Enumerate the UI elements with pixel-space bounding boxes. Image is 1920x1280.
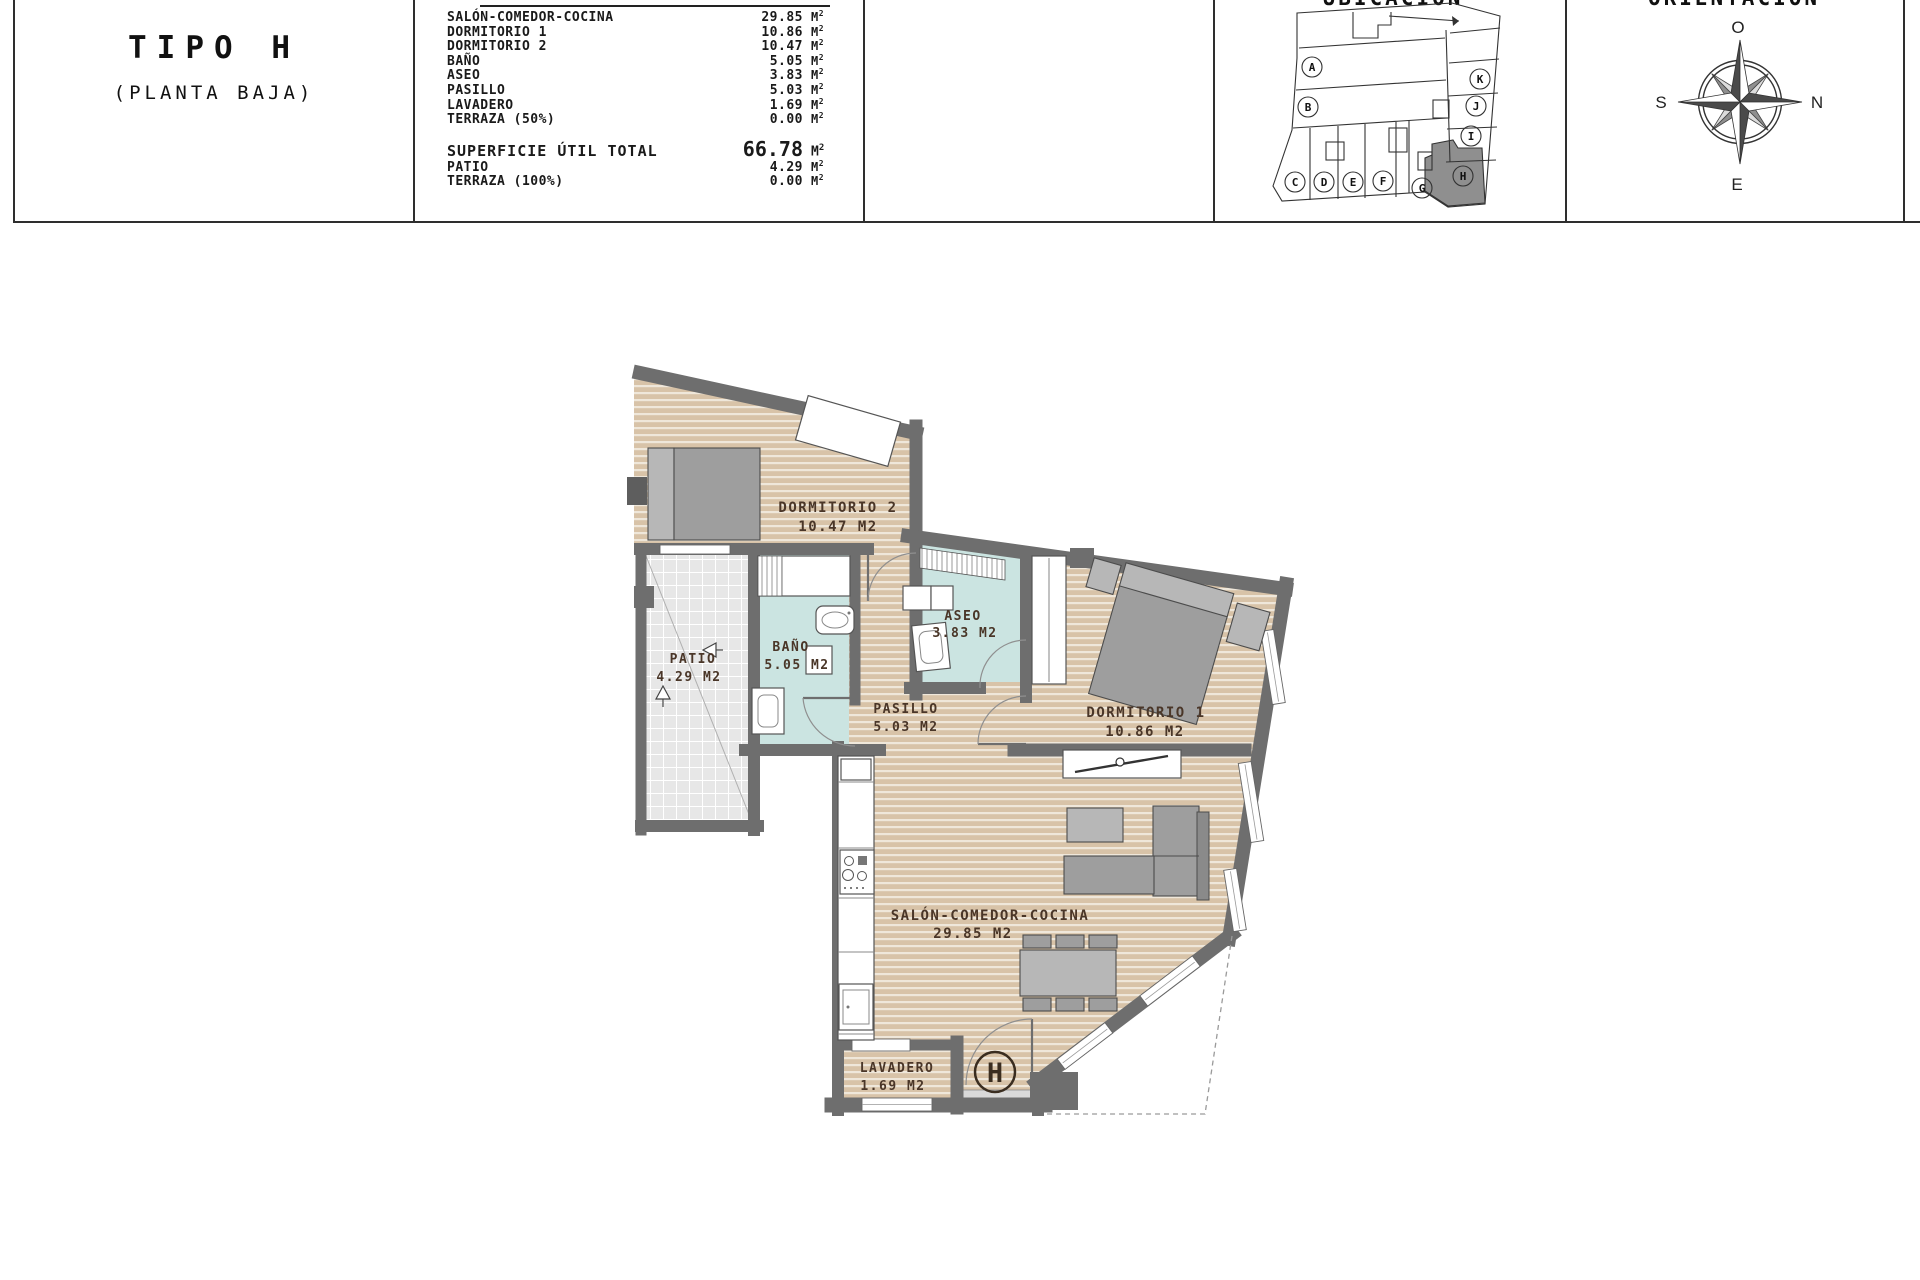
kitchen-counter: [838, 756, 874, 1040]
compass-north-label: N: [1811, 93, 1823, 112]
table-row: PATIO4.29M2: [447, 159, 845, 174]
divider-1: [413, 0, 415, 222]
row-unit: M2: [803, 67, 845, 82]
row-unit: M2: [803, 82, 845, 97]
wall-block-left: [627, 477, 647, 505]
label-lavadero-name: LAVADERO: [860, 1061, 935, 1076]
stair-arrow: [1389, 16, 1459, 21]
label-dormitorio1-name: DORMITORIO 1: [1086, 705, 1205, 721]
row-value: 0.00: [741, 112, 803, 127]
label-salon-name: SALÓN-COMEDOR-COCINA: [891, 906, 1090, 924]
floor-plan: DORMITORIO 2 10.47 M2 BAÑO 5.05 M2 ASEO …: [610, 350, 1310, 1140]
bathtub: [816, 606, 854, 634]
dining-set: [1020, 935, 1117, 1011]
label-patio-name: PATIO: [670, 652, 717, 667]
coffee-table: [1067, 808, 1123, 842]
ubicacion-panel: UBICACIÓN A B C D E F: [1213, 0, 1565, 222]
row-value: 0.00: [741, 174, 803, 189]
unit-letter-i: I: [1468, 130, 1475, 143]
table-total-row: SUPERFICIE ÚTIL TOTAL66.78M2: [447, 137, 845, 159]
row-value: 4.29: [741, 160, 803, 175]
label-aseo-name: ASEO: [944, 609, 981, 624]
label-pasillo-name: PASILLO: [873, 702, 938, 717]
row-value: 5.03: [741, 83, 803, 98]
unit-letter-g: G: [1419, 182, 1426, 195]
compass-east-label: E: [1731, 175, 1742, 194]
unit-letter-h: H: [1460, 170, 1467, 183]
label-bano-area: 5.05 M2: [764, 658, 829, 673]
floorplan-sheet: TIPO H (PLANTA BAJA) SALÓN-COMEDOR-COCIN…: [0, 0, 1920, 1280]
label-lavadero-area: 1.69 M2: [860, 1079, 925, 1094]
title-header-band: TIPO H (PLANTA BAJA) SALÓN-COMEDOR-COCIN…: [0, 0, 1920, 222]
area-table: SALÓN-COMEDOR-COCINA29.85M2 DORMITORIO 1…: [447, 9, 845, 188]
type-title-block: TIPO H (PLANTA BAJA): [15, 0, 413, 222]
unit-h-highlight: [1425, 140, 1485, 206]
entrance-marker-letter: H: [987, 1058, 1003, 1089]
label-aseo-area: 3.83 M2: [932, 626, 997, 641]
unit-letter-d: D: [1321, 176, 1328, 189]
row-value: 29.85: [741, 10, 803, 25]
compass-south-label: S: [1655, 93, 1666, 112]
label-salon-area: 29.85 M2: [933, 926, 1012, 942]
row-value: 10.47: [741, 39, 803, 54]
row-unit: M2: [803, 159, 845, 174]
unit-letters: A B C D E F G H I J K: [1285, 57, 1490, 198]
row-unit: M2: [803, 38, 845, 53]
page-subtitle: (PLANTA BAJA): [114, 82, 315, 104]
kitchen-sink: [839, 984, 873, 1030]
label-dormitorio1-area: 10.86 M2: [1105, 724, 1184, 740]
row-label: PASILLO: [447, 83, 741, 98]
stove: [840, 850, 874, 894]
unit-letter-k: K: [1477, 73, 1484, 86]
row-unit: M2: [803, 173, 845, 188]
page-title: TIPO H: [128, 30, 300, 66]
table-row: BAÑO5.05M2: [447, 53, 845, 68]
divider-2: [863, 0, 865, 222]
compass-west-label: O: [1731, 18, 1744, 37]
unit-letter-b: B: [1305, 101, 1312, 114]
unit-letter-e: E: [1350, 176, 1357, 189]
total-value: 66.78: [729, 137, 803, 161]
window-patio: [660, 545, 730, 554]
table-row: TERRAZA (100%)0.00M2: [447, 173, 845, 188]
entrance-wall-block: [1030, 1072, 1078, 1110]
total-label: SUPERFICIE ÚTIL TOTAL: [447, 142, 729, 160]
table-row: DORMITORIO 210.47M2: [447, 38, 845, 53]
row-value: 10.86: [741, 25, 803, 40]
label-dormitorio2-name: DORMITORIO 2: [778, 500, 897, 516]
table-row: ASEO3.83M2: [447, 67, 845, 82]
wall-block-patio: [634, 586, 654, 608]
table-row: DORMITORIO 110.86M2: [447, 24, 845, 39]
aseo-sink: [903, 586, 931, 610]
row-label: LAVADERO: [447, 98, 741, 113]
table-row: LAVADERO1.69M2: [447, 97, 845, 112]
window-lavadero-interior: [852, 1039, 910, 1051]
unit-letter-j: J: [1473, 100, 1480, 113]
aseo-counter: [931, 586, 953, 610]
ubicacion-title: UBICACIÓN: [1323, 0, 1464, 10]
label-bano-name: BAÑO: [772, 639, 809, 655]
unit-letter-a: A: [1309, 61, 1316, 74]
row-label: TERRAZA (100%): [447, 174, 741, 189]
row-unit: M2: [803, 143, 845, 159]
toilet-bano: [752, 688, 784, 734]
divider-right: [1903, 0, 1905, 222]
row-label: DORMITORIO 2: [447, 39, 741, 54]
unit-letter-f: F: [1380, 175, 1387, 188]
bed-dormitorio2: [648, 448, 760, 540]
row-unit: M2: [803, 53, 845, 68]
table-row: PASILLO5.03M2: [447, 82, 845, 97]
row-label: PATIO: [447, 160, 741, 175]
row-label: DORMITORIO 1: [447, 25, 741, 40]
label-dormitorio2-area: 10.47 M2: [798, 519, 877, 535]
table-row: SALÓN-COMEDOR-COCINA29.85M2: [447, 9, 845, 24]
bano-louver: [758, 556, 782, 596]
row-label: TERRAZA (50%): [447, 112, 741, 127]
row-value: 1.69: [741, 98, 803, 113]
tv-unit: [1063, 750, 1181, 778]
wall-pier: [1070, 548, 1094, 568]
unit-letter-c: C: [1292, 176, 1299, 189]
row-label: BAÑO: [447, 54, 741, 69]
table-top-rule: [480, 5, 830, 7]
label-pasillo-area: 5.03 M2: [873, 720, 938, 735]
label-patio-area: 4.29 M2: [656, 670, 721, 685]
row-value: 5.05: [741, 54, 803, 69]
row-value: 3.83: [741, 68, 803, 83]
row-unit: M2: [803, 24, 845, 39]
row-unit: M2: [803, 97, 845, 112]
compass-rose: O E S N: [1655, 18, 1823, 194]
row-label: ASEO: [447, 68, 741, 83]
table-row: TERRAZA (50%)0.00M2: [447, 111, 845, 126]
row-label: SALÓN-COMEDOR-COCINA: [447, 10, 741, 25]
orientacion-panel: ORIENTACIÓN: [1565, 0, 1903, 222]
row-unit: M2: [803, 9, 845, 24]
row-unit: M2: [803, 111, 845, 126]
orientacion-title: ORIENTACIÓN: [1648, 0, 1820, 10]
